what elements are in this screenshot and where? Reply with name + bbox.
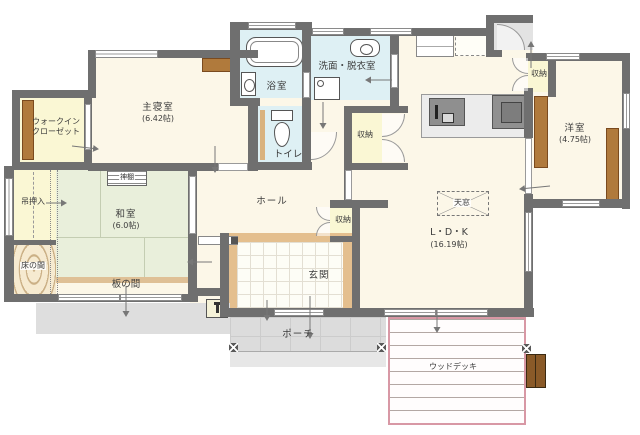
sliding-door [189,176,196,234]
window [623,93,630,129]
washing-machine [314,77,340,100]
wall [622,53,630,209]
skylight-label: 天窓 [453,199,471,207]
western-room-label: 洋室 [564,124,585,134]
tatami-threshold [50,170,58,294]
window [248,22,296,29]
washroom-label: 洗面・脱衣室 [318,62,375,72]
storage-entrance-label: 収納 [335,216,351,224]
bath-door [303,72,310,98]
washing-machine-dot [317,80,324,87]
wall [352,205,360,309]
western-closet-right [606,128,619,200]
japanese-room-label: 和室 [115,210,136,220]
storage-by-washroom-label: 収納 [357,131,373,139]
wall [230,22,240,106]
sink-box [442,113,454,123]
window [120,294,182,301]
tatami-line [144,237,145,277]
sliding-door [391,54,398,88]
toilet-tank [271,110,293,121]
sliding-door [218,163,248,171]
washbasin-bowl [360,44,373,55]
bedroom-closet [202,58,231,72]
bath-vanity [241,72,256,96]
washbasin [350,39,380,57]
window [562,200,600,207]
wall [256,162,312,170]
window [436,309,488,316]
wall [524,88,533,138]
tokonoma-label: 床の間 [20,262,46,270]
window [5,178,13,236]
deck-step [526,354,546,388]
wic-label-line1: ウォークイン [32,118,80,126]
wall [302,28,311,170]
porch-step [230,351,386,367]
japanese-room-size: (6.0帖) [113,222,140,230]
faucet-icon [435,105,438,119]
western-room-size: (4.75帖) [559,136,591,144]
tatami-line [100,170,101,237]
wall [12,240,56,245]
wall [12,162,90,170]
deck-post [522,344,531,353]
master-bedroom-size: (6.42帖) [142,115,174,123]
entrance-sliding-door [274,309,324,316]
wic-label-line2: クローゼット [32,128,80,136]
cabinet-line [417,46,453,47]
kamidana-label: 神棚 [119,174,135,181]
sliding-door [345,170,352,200]
wall [248,100,258,170]
window [384,309,436,316]
kitchen-wall-cabinet [416,34,454,57]
wall [330,236,356,242]
wall [330,200,388,208]
wall [12,90,96,98]
hall-label: ホール [256,197,288,207]
wall [486,50,502,57]
master-bedroom-label: 主寝室 [142,103,174,113]
wall [88,163,218,171]
porch-post [229,343,238,352]
porch-label: ポーチ [282,330,314,340]
window [546,53,580,60]
itanoma-label: 板の間 [112,280,141,290]
wall [548,57,556,97]
kitchen-sink-unit [429,98,465,126]
wall [12,90,20,170]
wood-deck-label: ウッドデッキ [429,363,477,371]
ldk-label: L・D・K [430,228,468,238]
floor-plan: 主寝室 (6.42帖) ウォークイン クローゼット 浴室 洗面・脱衣室 トイレ … [0,0,640,435]
refrigerator-inner [501,102,522,123]
toilet-label: トイレ [274,150,303,160]
wall [220,233,229,317]
toilet-counter [260,110,265,160]
wall [344,106,352,170]
wood-deck-floor [388,317,526,425]
bathroom-label: 浴室 [266,82,287,92]
hanging-closet-label: 吊押入 [21,198,45,206]
entrance-label: 玄関 [308,271,329,281]
wall [524,194,533,208]
tatami-line [56,237,188,238]
ldk-size: (16.19帖) [430,241,467,249]
entrance-frame [228,233,358,310]
window [370,28,412,35]
porch-post [377,343,386,352]
kitchen-island [421,94,527,138]
western-closet-left [534,96,548,168]
vanity-bowl [244,79,255,92]
window [95,50,158,58]
sliding-door [85,104,91,150]
wall [486,15,533,23]
window [312,28,344,35]
sliding-door [525,138,532,194]
terrace [36,303,230,334]
shoe-cabinet-end [231,237,238,244]
wall [344,163,408,170]
deck-step-line [535,355,536,387]
window [58,294,120,301]
window [525,212,532,272]
storage-north-label: 収納 [531,70,547,78]
